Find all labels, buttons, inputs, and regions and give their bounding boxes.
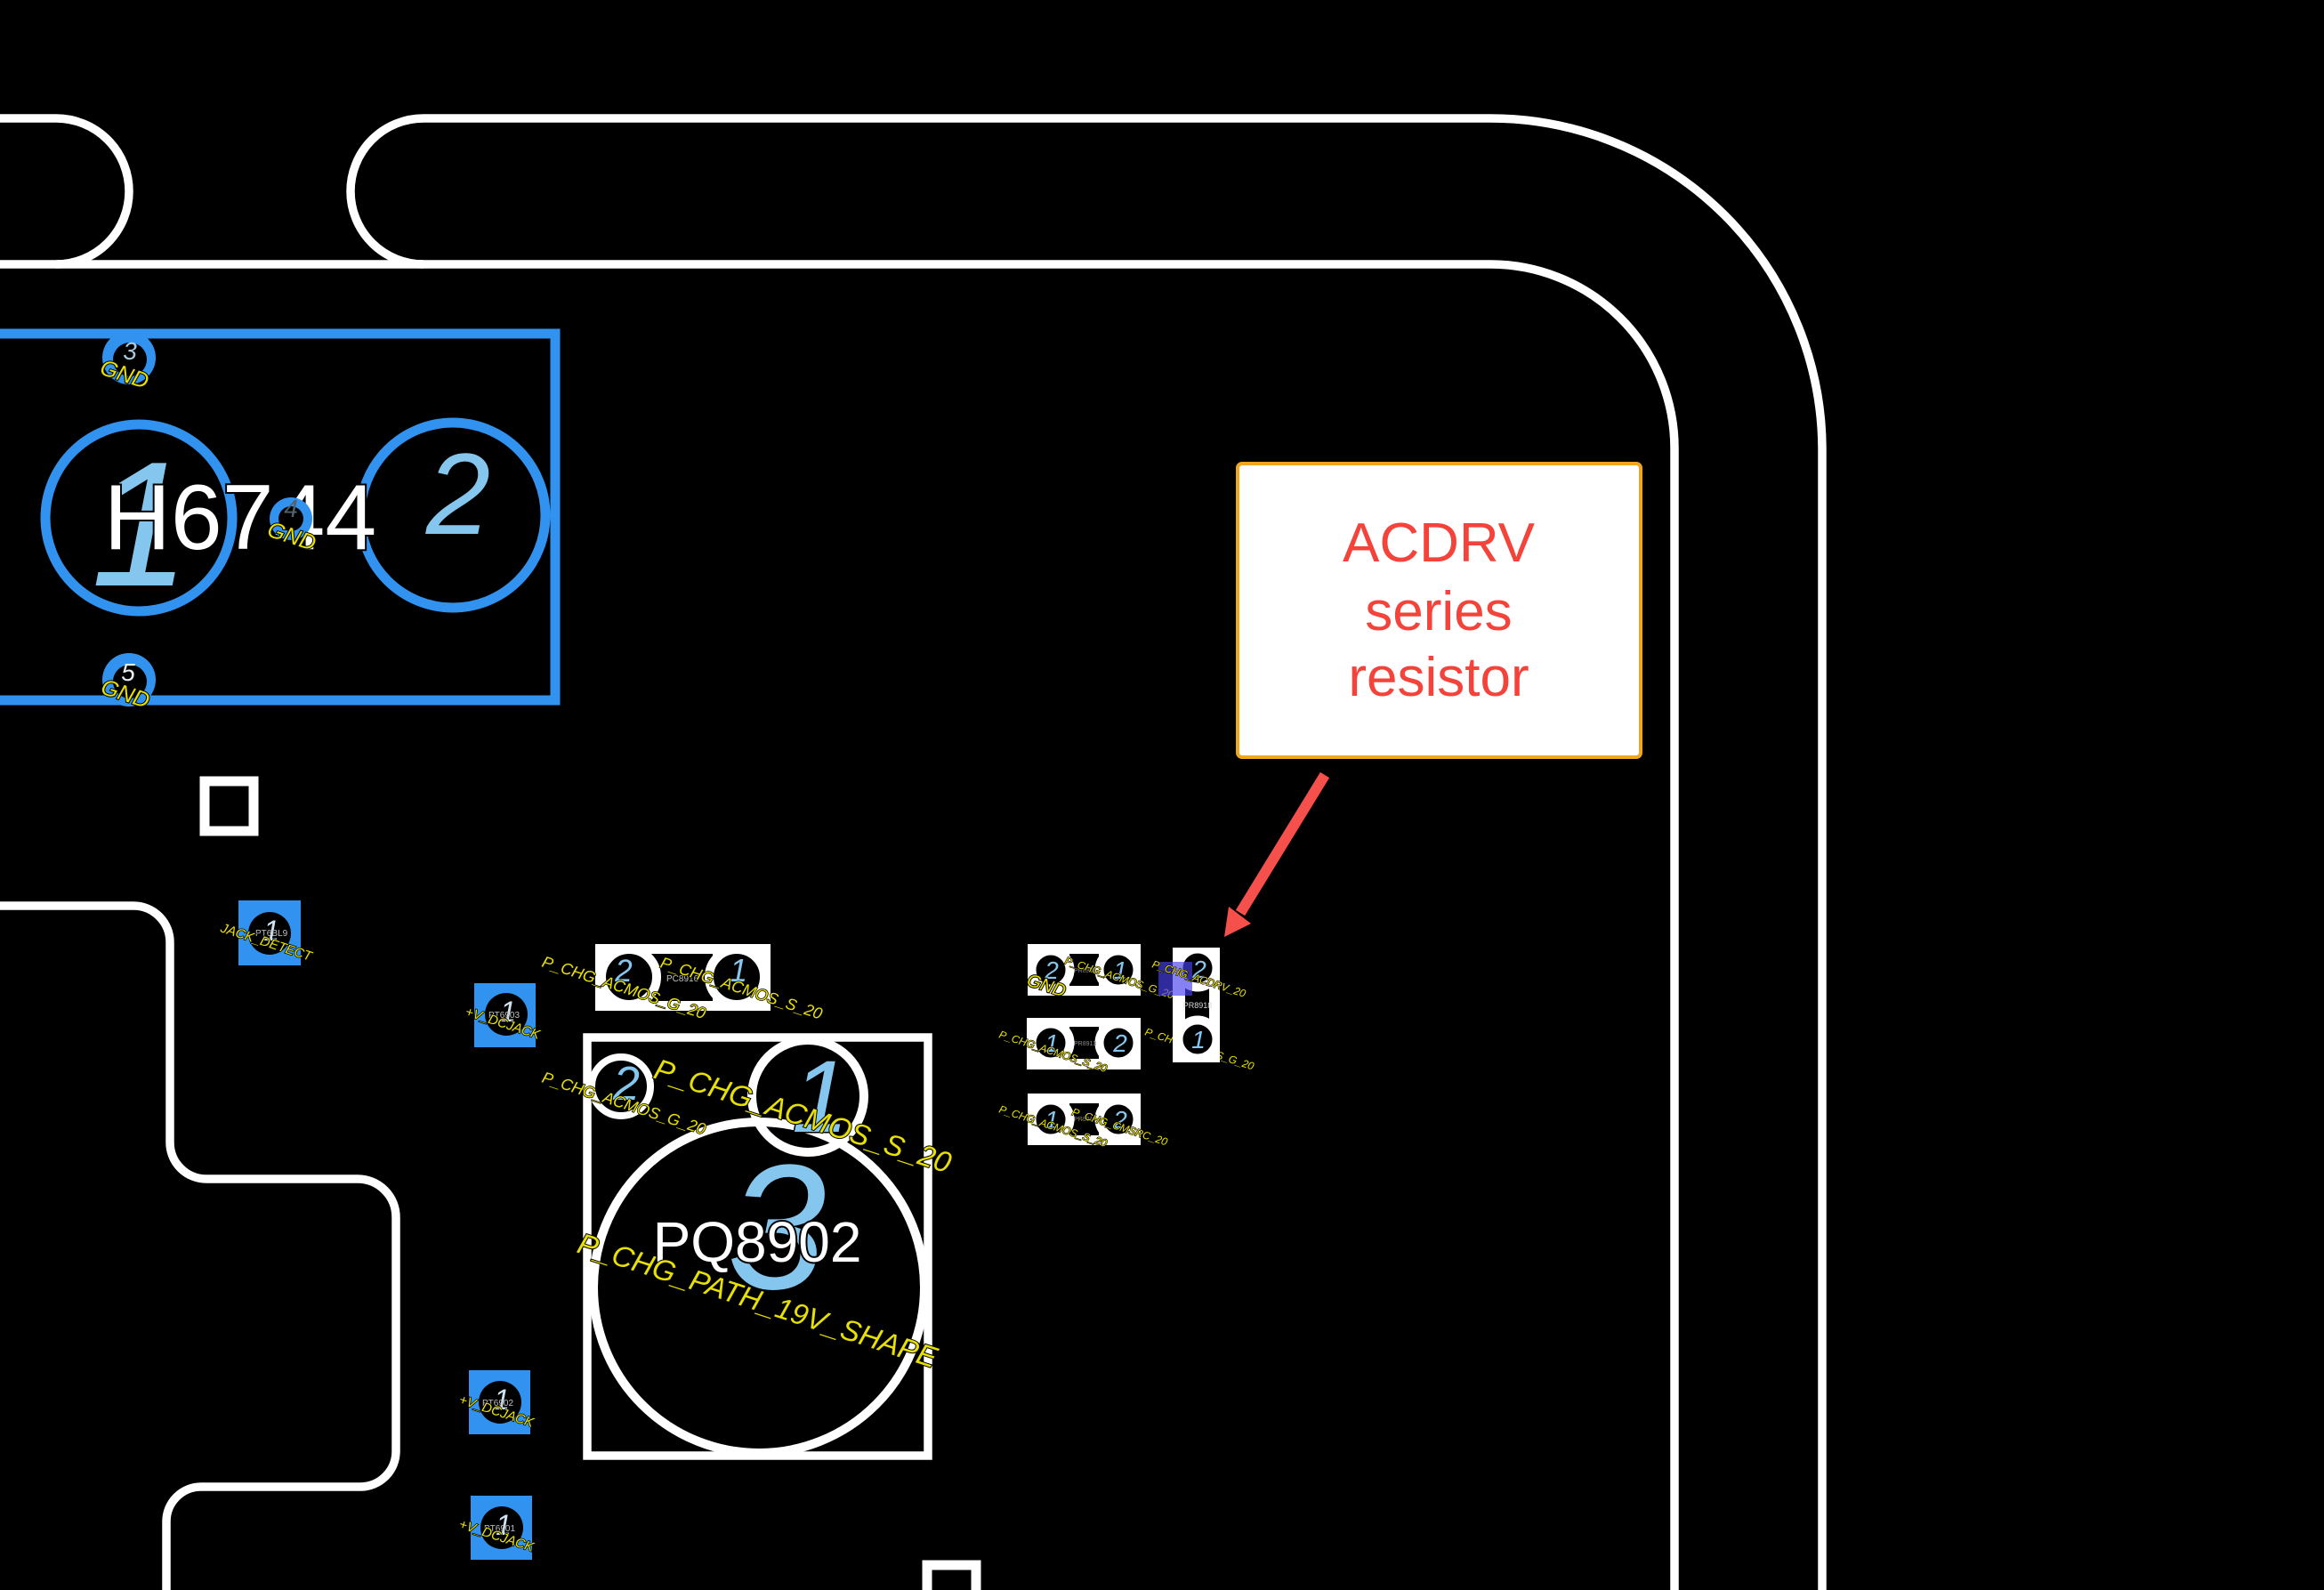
- svg-text:ACDRV: ACDRV: [1343, 513, 1536, 574]
- svg-text:4: 4: [284, 495, 298, 522]
- svg-text:2: 2: [1112, 1029, 1127, 1057]
- svg-text:PR8913: PR8913: [1074, 1041, 1096, 1047]
- svg-text:3: 3: [123, 337, 137, 365]
- svg-text:series: series: [1365, 581, 1512, 642]
- svg-text:1: 1: [1191, 1026, 1206, 1053]
- svg-text:PR8918: PR8918: [1183, 1001, 1213, 1010]
- svg-text:resistor: resistor: [1348, 647, 1529, 708]
- svg-text:2: 2: [425, 429, 490, 559]
- svg-text:H6744: H6744: [104, 466, 376, 569]
